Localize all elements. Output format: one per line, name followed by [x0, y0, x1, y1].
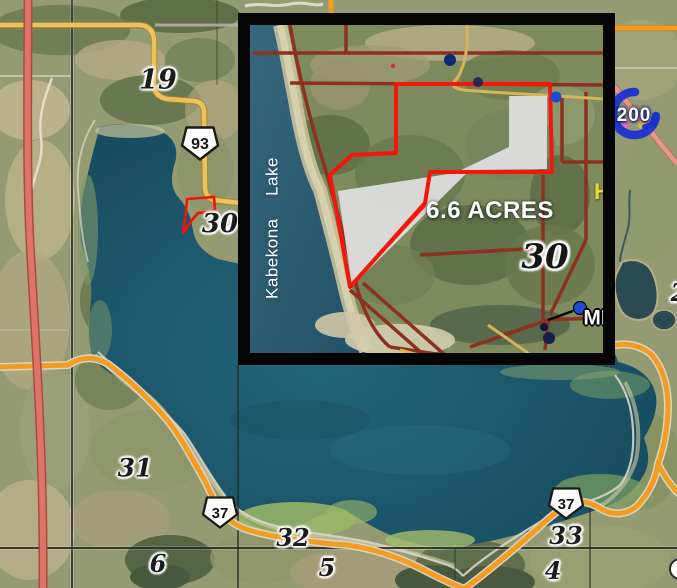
shield-37-west-number: 37: [212, 505, 229, 522]
highway-shield-37-west: 37: [201, 494, 239, 530]
section-label-4: 4: [545, 559, 562, 583]
inset-lake-name-label: Kabekona Lake: [264, 157, 281, 299]
section-label-6: 6: [150, 552, 167, 576]
inset-detail-map: Kabekona Lake 6.6 ACRES 30 MI H: [238, 13, 615, 365]
section-label-19: 19: [139, 67, 177, 94]
section-label-30: 30: [202, 211, 238, 237]
inset-canvas: [250, 25, 603, 353]
section-label-33: 33: [549, 524, 582, 548]
inset-section-label-30: 30: [521, 240, 568, 274]
section-label-2: 2: [671, 281, 677, 305]
inset-acreage-label: 6.6 ACRES: [426, 199, 554, 223]
section-label-32: 32: [276, 526, 309, 550]
highway-shield-93: 93: [180, 124, 220, 162]
highway-shield-37-east: 37: [547, 485, 585, 521]
shield-93-number: 93: [191, 136, 209, 153]
aerial-plat-map: 19 30 31 32 33 6 5 4 2 93 37 37 200: [0, 0, 677, 588]
section-label-31: 31: [118, 456, 153, 481]
inset-clipped-label-h: H: [594, 181, 603, 203]
section-label-5: 5: [319, 556, 336, 580]
inset-clipped-label-mi: MI: [583, 308, 603, 329]
shield-37-east-number: 37: [558, 496, 575, 513]
